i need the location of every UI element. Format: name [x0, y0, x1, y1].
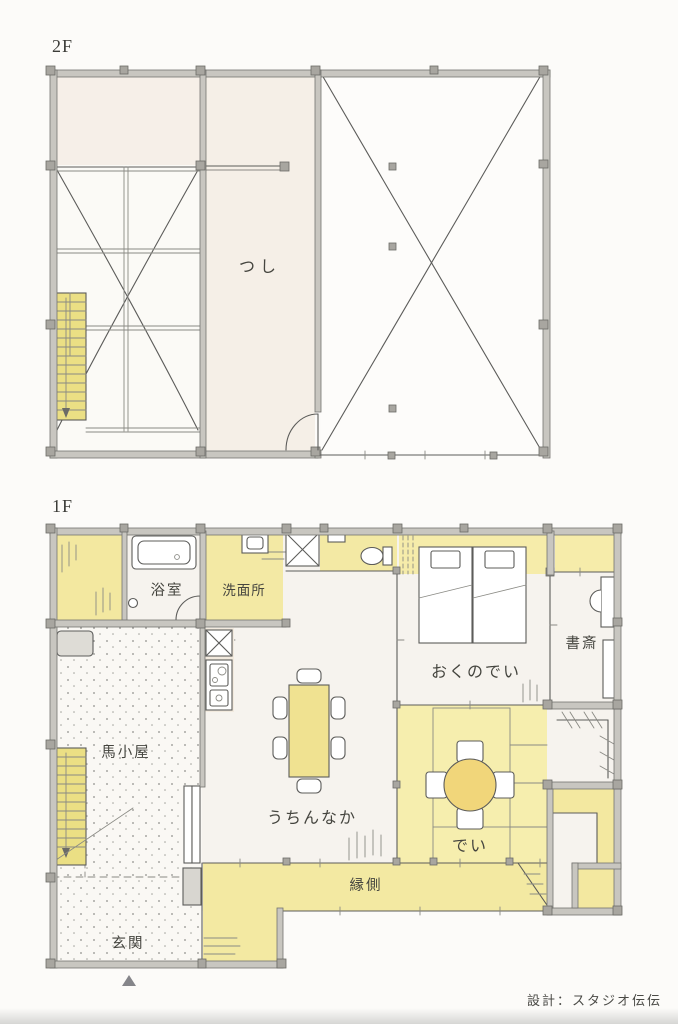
washing-machine-icon: [242, 534, 268, 553]
stairs-2f-icon: [53, 293, 86, 420]
closet-x-icon: [286, 533, 319, 566]
room-label-washroom: 洗面所: [222, 583, 266, 598]
design-credit: 設計：スタジオ伝伝: [527, 990, 662, 1009]
page-bottom-fade: [0, 1008, 678, 1024]
trough-icon: [57, 631, 93, 656]
room-label-stable: 馬小屋: [101, 744, 151, 761]
door-handle-icon: [129, 599, 138, 608]
room-label-uchinnaka: うちんなか: [267, 809, 357, 827]
sliding-door-icon: [184, 786, 200, 863]
floor1-label: 1F: [52, 496, 73, 516]
bed-icon: [473, 547, 526, 643]
room-label-bathroom: 浴室: [151, 582, 184, 599]
floor-plan-drawing: 2F つし 1F 浴室 洗面所 おくのでい 書斎 馬小屋 うちんなか でい 縁側…: [0, 0, 678, 1024]
floor-plan-page: 2F つし 1F 浴室 洗面所 おくのでい 書斎 馬小屋 うちんなか でい 縁側…: [0, 0, 678, 1024]
room-label-dei: でい: [452, 838, 488, 855]
room-label-okunodei: おくのでい: [431, 663, 521, 681]
bed-icon: [419, 547, 472, 643]
room-label-engawa: 縁側: [350, 877, 383, 894]
shoe-cabinet-icon: [183, 868, 201, 905]
room-label-entrance: 玄関: [112, 935, 145, 952]
kitchen-sink-icon: [204, 628, 234, 712]
bathtub-icon: [132, 536, 196, 569]
floor-plan-2f: [46, 66, 550, 459]
room-label-study: 書斎: [566, 634, 599, 652]
entrance-arrow-icon: [122, 975, 136, 986]
room-label-tsushi: つし: [239, 259, 281, 276]
floor2-label: 2F: [52, 36, 73, 56]
